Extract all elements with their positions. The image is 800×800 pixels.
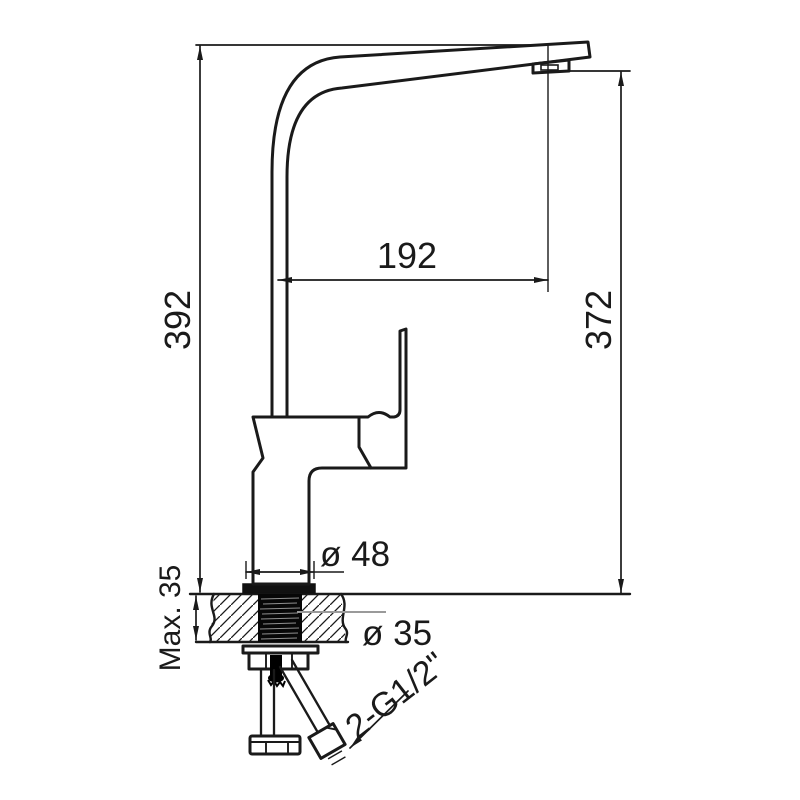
dim-192-label: 192 [377, 235, 437, 276]
hose-end-fitting-diagonal [309, 724, 351, 768]
aerator-screen [541, 65, 558, 70]
thread-tick-2 [332, 757, 346, 765]
dim-deck-thickness-label: Max. 35 [154, 565, 187, 672]
dim-overall-height: 392 [157, 46, 200, 592]
dim-deck-thickness: Max. 35 [154, 565, 196, 672]
hatch-left [210, 594, 258, 642]
dim-spout-height: 372 [566, 71, 630, 593]
dim-thread-label: 2-G1/2" [339, 645, 454, 746]
faucet-body [253, 42, 590, 584]
dim-base-diameter-label: ø 48 [320, 535, 390, 574]
supply-hose-diagonal-upper-edge [292, 660, 329, 724]
dim-hole-diameter-label: ø 35 [362, 614, 432, 653]
hose-end-fitting-vertical [250, 736, 300, 754]
dim-hose-thread: 2-G1/2" [339, 645, 454, 748]
supply-hose-diagonal-lower-edge [280, 667, 317, 731]
tie-rod-end [268, 674, 284, 683]
spout-arm [272, 42, 590, 417]
hatch-right [302, 594, 346, 642]
faucet-technical-drawing: 392 372 192 ø 48 ø 35 Max. 35 [0, 0, 800, 800]
dim-372-label: 372 [578, 290, 619, 350]
diagonal-fitting-body [309, 724, 345, 759]
dim-392-label: 392 [157, 290, 198, 350]
